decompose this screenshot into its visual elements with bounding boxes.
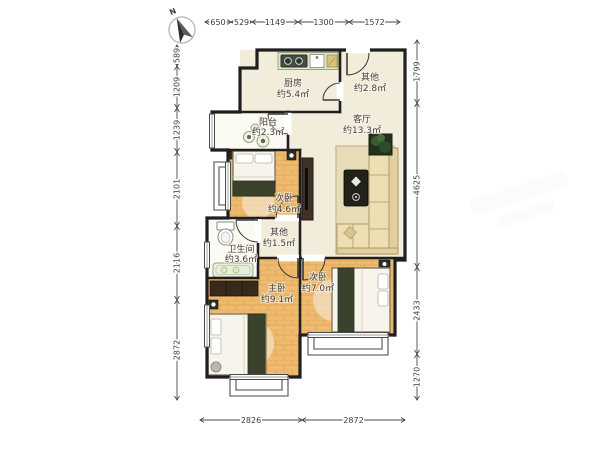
label-bathroom: 卫生间 约3.6㎡ bbox=[225, 243, 257, 265]
dimension-label: 589 bbox=[173, 48, 182, 63]
north-label: N bbox=[168, 6, 177, 17]
dimension-segment: 589 bbox=[173, 45, 182, 66]
room-area: 约2.3㎡ bbox=[252, 126, 284, 138]
dimension-segment: 1149 bbox=[252, 18, 298, 27]
room-area: 约9.1㎡ bbox=[261, 293, 293, 305]
dimension-label: 529 bbox=[234, 18, 249, 27]
dimension-segment: 1239 bbox=[173, 108, 182, 152]
kitchen-counter-icon bbox=[278, 53, 338, 70]
dimension-segment: 4625 bbox=[413, 103, 422, 267]
dimension-segment: 650 bbox=[205, 18, 231, 27]
dimension-label: 1149 bbox=[265, 18, 285, 27]
dimension-segment: 2116 bbox=[173, 226, 182, 300]
floor-plan-canvas: 厨房 约5.4㎡ 其他 约2.8㎡ 阳台 约2.3㎡ 客厅 约13.3㎡ 次卧 … bbox=[0, 0, 600, 450]
dimension-label: 1270 bbox=[413, 367, 422, 387]
compass-icon: N bbox=[160, 2, 199, 47]
dimension-label: 1239 bbox=[173, 120, 182, 140]
hallway-floor bbox=[258, 218, 300, 258]
dimension-segment: 2101 bbox=[173, 152, 182, 226]
dimension-label: 2116 bbox=[173, 253, 182, 273]
wardrobe-icon bbox=[210, 281, 258, 296]
room-name: 其他 bbox=[361, 71, 379, 83]
pot-icon bbox=[211, 362, 221, 372]
dimension-label: 2433 bbox=[413, 300, 422, 320]
room-name: 厨房 bbox=[284, 77, 302, 89]
room-area: 约4.6㎡ bbox=[268, 203, 300, 215]
room-area: 约13.3㎡ bbox=[343, 124, 381, 136]
room-area: 约2.8㎡ bbox=[354, 82, 386, 94]
dimension-label: 2101 bbox=[173, 179, 182, 199]
bay-window-right bbox=[307, 335, 389, 356]
dimension-segment: 1799 bbox=[413, 40, 422, 103]
dimension-segment: 2826 bbox=[200, 416, 302, 425]
dimension-segment: 1209 bbox=[173, 66, 182, 108]
room-name: 次卧 bbox=[309, 271, 327, 283]
room-area: 约7.0㎡ bbox=[302, 282, 334, 294]
dimension-label: 1300 bbox=[313, 18, 333, 27]
room-name: 主卧 bbox=[268, 282, 286, 294]
floor-plan-page: 厨房 约5.4㎡ 其他 约2.8㎡ 阳台 约2.3㎡ 客厅 约13.3㎡ 次卧 … bbox=[0, 0, 600, 450]
plant-icon bbox=[369, 134, 392, 155]
dimension-label: 4625 bbox=[413, 175, 422, 195]
dimension-segment: 529 bbox=[231, 18, 252, 27]
room-name: 次卧 bbox=[275, 192, 293, 204]
dimension-label: 2826 bbox=[241, 416, 261, 425]
coffee-table-icon bbox=[344, 170, 368, 206]
dimension-segment: 1572 bbox=[349, 18, 400, 27]
dimension-label: 1572 bbox=[364, 18, 384, 27]
dimension-segment: 1270 bbox=[413, 354, 422, 400]
bathtub-icon bbox=[213, 263, 253, 277]
tv-cabinet-icon bbox=[302, 158, 313, 220]
room-name: 阳台 bbox=[259, 116, 277, 128]
dimension-label: 1209 bbox=[173, 77, 182, 97]
dimension-segment: 2872 bbox=[302, 416, 405, 425]
dimension-label: 1799 bbox=[413, 61, 422, 81]
dimension-label: 2872 bbox=[343, 416, 363, 425]
bed-right-icon bbox=[332, 260, 390, 333]
watermark bbox=[469, 170, 575, 234]
dimension-segment: 2872 bbox=[173, 300, 182, 400]
dimension-label: 2872 bbox=[173, 340, 182, 360]
dimension-segment: 2433 bbox=[413, 267, 422, 354]
room-name: 客厅 bbox=[353, 113, 371, 125]
room-area: 约5.4㎡ bbox=[277, 88, 309, 100]
room-area: 约1.5㎡ bbox=[263, 237, 295, 249]
room-name: 其他 bbox=[270, 226, 288, 238]
dimension-segment: 1300 bbox=[298, 18, 349, 27]
room-area: 约3.6㎡ bbox=[225, 253, 257, 265]
toilet-icon bbox=[217, 222, 234, 245]
room-name: 卫生间 bbox=[227, 243, 254, 255]
dimension-label: 650 bbox=[210, 18, 225, 27]
